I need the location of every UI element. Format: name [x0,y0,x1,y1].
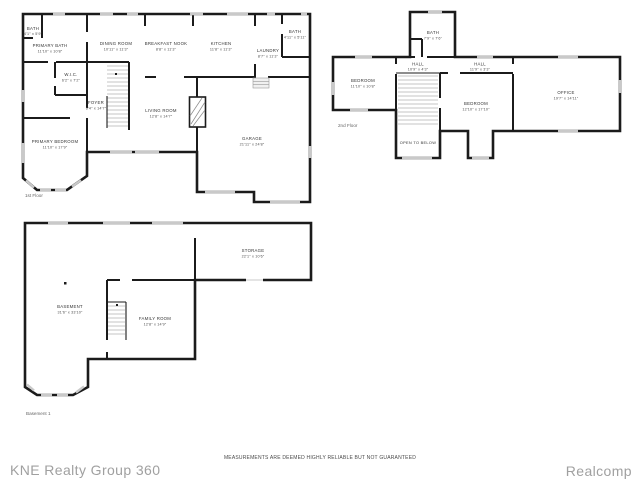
room-name-bath-2f: BATH [427,30,439,35]
room-name-bedroom-b: BEDROOM [464,101,488,106]
second-floor-stairs [398,76,438,124]
support-post [64,282,67,285]
room-dims-primary-bath: 11'10" x 10'8" [38,50,63,54]
room-name-dining: DINING ROOM [100,41,133,46]
room-name-living: LIVING ROOM [145,108,177,113]
room-dims-garage: 21'11" x 24'8" [240,143,265,147]
room-dims-bath2: 4'11" x 5'11" [284,36,307,40]
brand-right: Realcomp [566,463,632,479]
basement-stairs [108,302,126,340]
room-name-breakfast: BREAKFAST NOOK [145,41,188,46]
room-dims-breakfast: 8'8" x 11'3" [156,48,177,52]
room-dims-foyer: 6'4" x 14'7" [86,107,107,111]
first-floor-plan: BATH 4'1" x 5'9" PRIMARY BATH 11'10" x 1… [20,8,320,208]
basement-caption: Basement 1 [26,411,51,416]
room-name-foyer: FOYER [88,100,104,105]
room-name-primary-bath: PRIMARY BATH [33,43,68,48]
room-dims-living: 12'8" x 14'7" [150,115,173,119]
room-dims-storage: 22'1" x 10'6" [242,255,265,259]
second-floor-plan: BATH 7'9" x 7'6" HALL 10'9" x 4'3" HALL … [330,8,625,183]
room-dims-primary-bedroom: 11'10" x 17'9" [43,146,68,150]
floor-plan-sheet: BATH 4'1" x 5'9" PRIMARY BATH 11'10" x 1… [0,0,640,480]
room-dims-office: 19'7" x 14'11" [554,97,579,101]
brand-left: KNE Realty Group 360 [10,462,160,478]
room-name-kitchen: KITCHEN [211,41,232,46]
room-name-bath2: BATH [289,29,301,34]
room-name-family: FAMILY ROOM [139,316,171,321]
second-floor-windows [333,12,620,158]
room-dims-bath-2f: 7'9" x 7'6" [424,37,443,41]
room-dims-bedroom-a: 11'10" x 10'8" [351,85,376,89]
room-name-office: OFFICE [557,90,574,95]
basement-labels: STORAGE 22'1" x 10'6" BASEMENT 31'6" x 3… [26,248,265,416]
basement-plan: STORAGE 22'1" x 10'6" BASEMENT 31'6" x 3… [20,212,320,417]
room-dims-laundry: 8'7" x 11'3" [258,55,279,59]
room-name-bath1: BATH [27,26,39,31]
room-name-basement: BASEMENT [57,304,83,309]
room-name-storage: STORAGE [242,248,265,253]
room-dims-kitchen: 11'8" x 11'3" [210,48,233,52]
garage-entry-steps [253,78,269,88]
room-name-hall-a: HALL [412,62,424,67]
basement-windows [27,223,183,395]
first-floor-labels: BATH 4'1" x 5'9" PRIMARY BATH 11'10" x 1… [24,26,307,198]
second-floor-walls [333,12,620,158]
second-floor-labels: BATH 7'9" x 7'6" HALL 10'9" x 4'3" HALL … [338,30,579,145]
room-dims-wic: 6'2" x 7'2" [62,79,81,83]
basement-walls [25,223,311,395]
room-name-hall-b: HALL [474,62,486,67]
room-dims-hall-a: 10'9" x 4'3" [408,68,429,72]
room-dims-hall-b: 11'9" x 3'3" [470,68,491,72]
open-to-below-label: OPEN TO BELOW [400,140,436,145]
room-name-bedroom-a: BEDROOM [351,78,375,83]
room-dims-dining: 10'11" x 11'3" [104,48,129,52]
room-dims-basement: 31'6" x 33'10" [57,311,83,315]
fireplace [190,97,206,127]
room-dims-family: 12'8" x 14'9" [144,323,167,327]
first-floor-stairs [107,66,128,128]
floor2-caption: 2nd Floor [338,123,358,128]
room-dims-bedroom-b: 12'10" x 17'10" [462,108,490,112]
room-dims-bath1: 4'1" x 5'9" [24,32,43,36]
room-name-laundry: LAUNDRY [257,48,279,53]
floor1-caption: 1st Floor [25,193,43,198]
measurements-disclaimer: MEASUREMENTS ARE DEEMED HIGHLY RELIABLE … [0,455,640,461]
room-name-primary-bedroom: PRIMARY BEDROOM [32,139,79,144]
room-name-wic: W.I.C. [64,72,77,77]
room-name-garage: GARAGE [242,136,262,141]
